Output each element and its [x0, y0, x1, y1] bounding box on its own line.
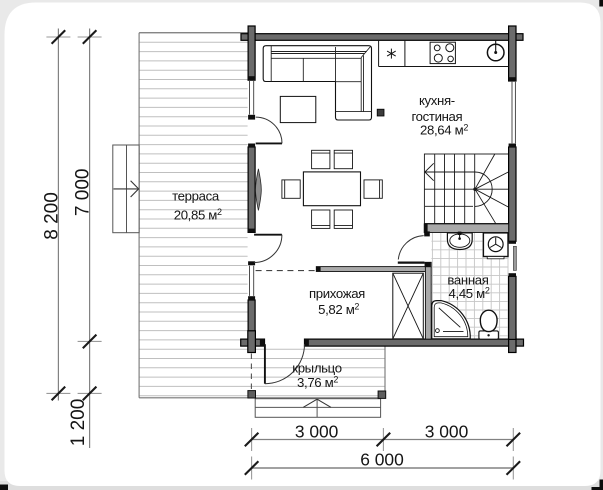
svg-text:кухня-: кухня- [419, 93, 455, 108]
svg-text:3 000: 3 000 [425, 421, 469, 441]
svg-text:6 000: 6 000 [360, 449, 404, 469]
svg-text:3,76 м2: 3,76 м2 [297, 375, 338, 390]
svg-text:7 000: 7 000 [73, 169, 94, 217]
svg-text:1 200: 1 200 [68, 399, 89, 447]
svg-text:терраса: терраса [172, 189, 220, 204]
svg-text:3 000: 3 000 [295, 421, 339, 441]
svg-text:28,64 м2: 28,64 м2 [420, 122, 468, 137]
svg-text:прихожая: прихожая [309, 286, 365, 301]
svg-text:20,85 м2: 20,85 м2 [174, 207, 222, 222]
svg-text:крыльцо: крыльцо [292, 361, 341, 376]
svg-text:8 200: 8 200 [42, 192, 63, 240]
svg-text:5,82 м2: 5,82 м2 [318, 302, 359, 317]
svg-text:4,45 м2: 4,45 м2 [449, 286, 490, 301]
